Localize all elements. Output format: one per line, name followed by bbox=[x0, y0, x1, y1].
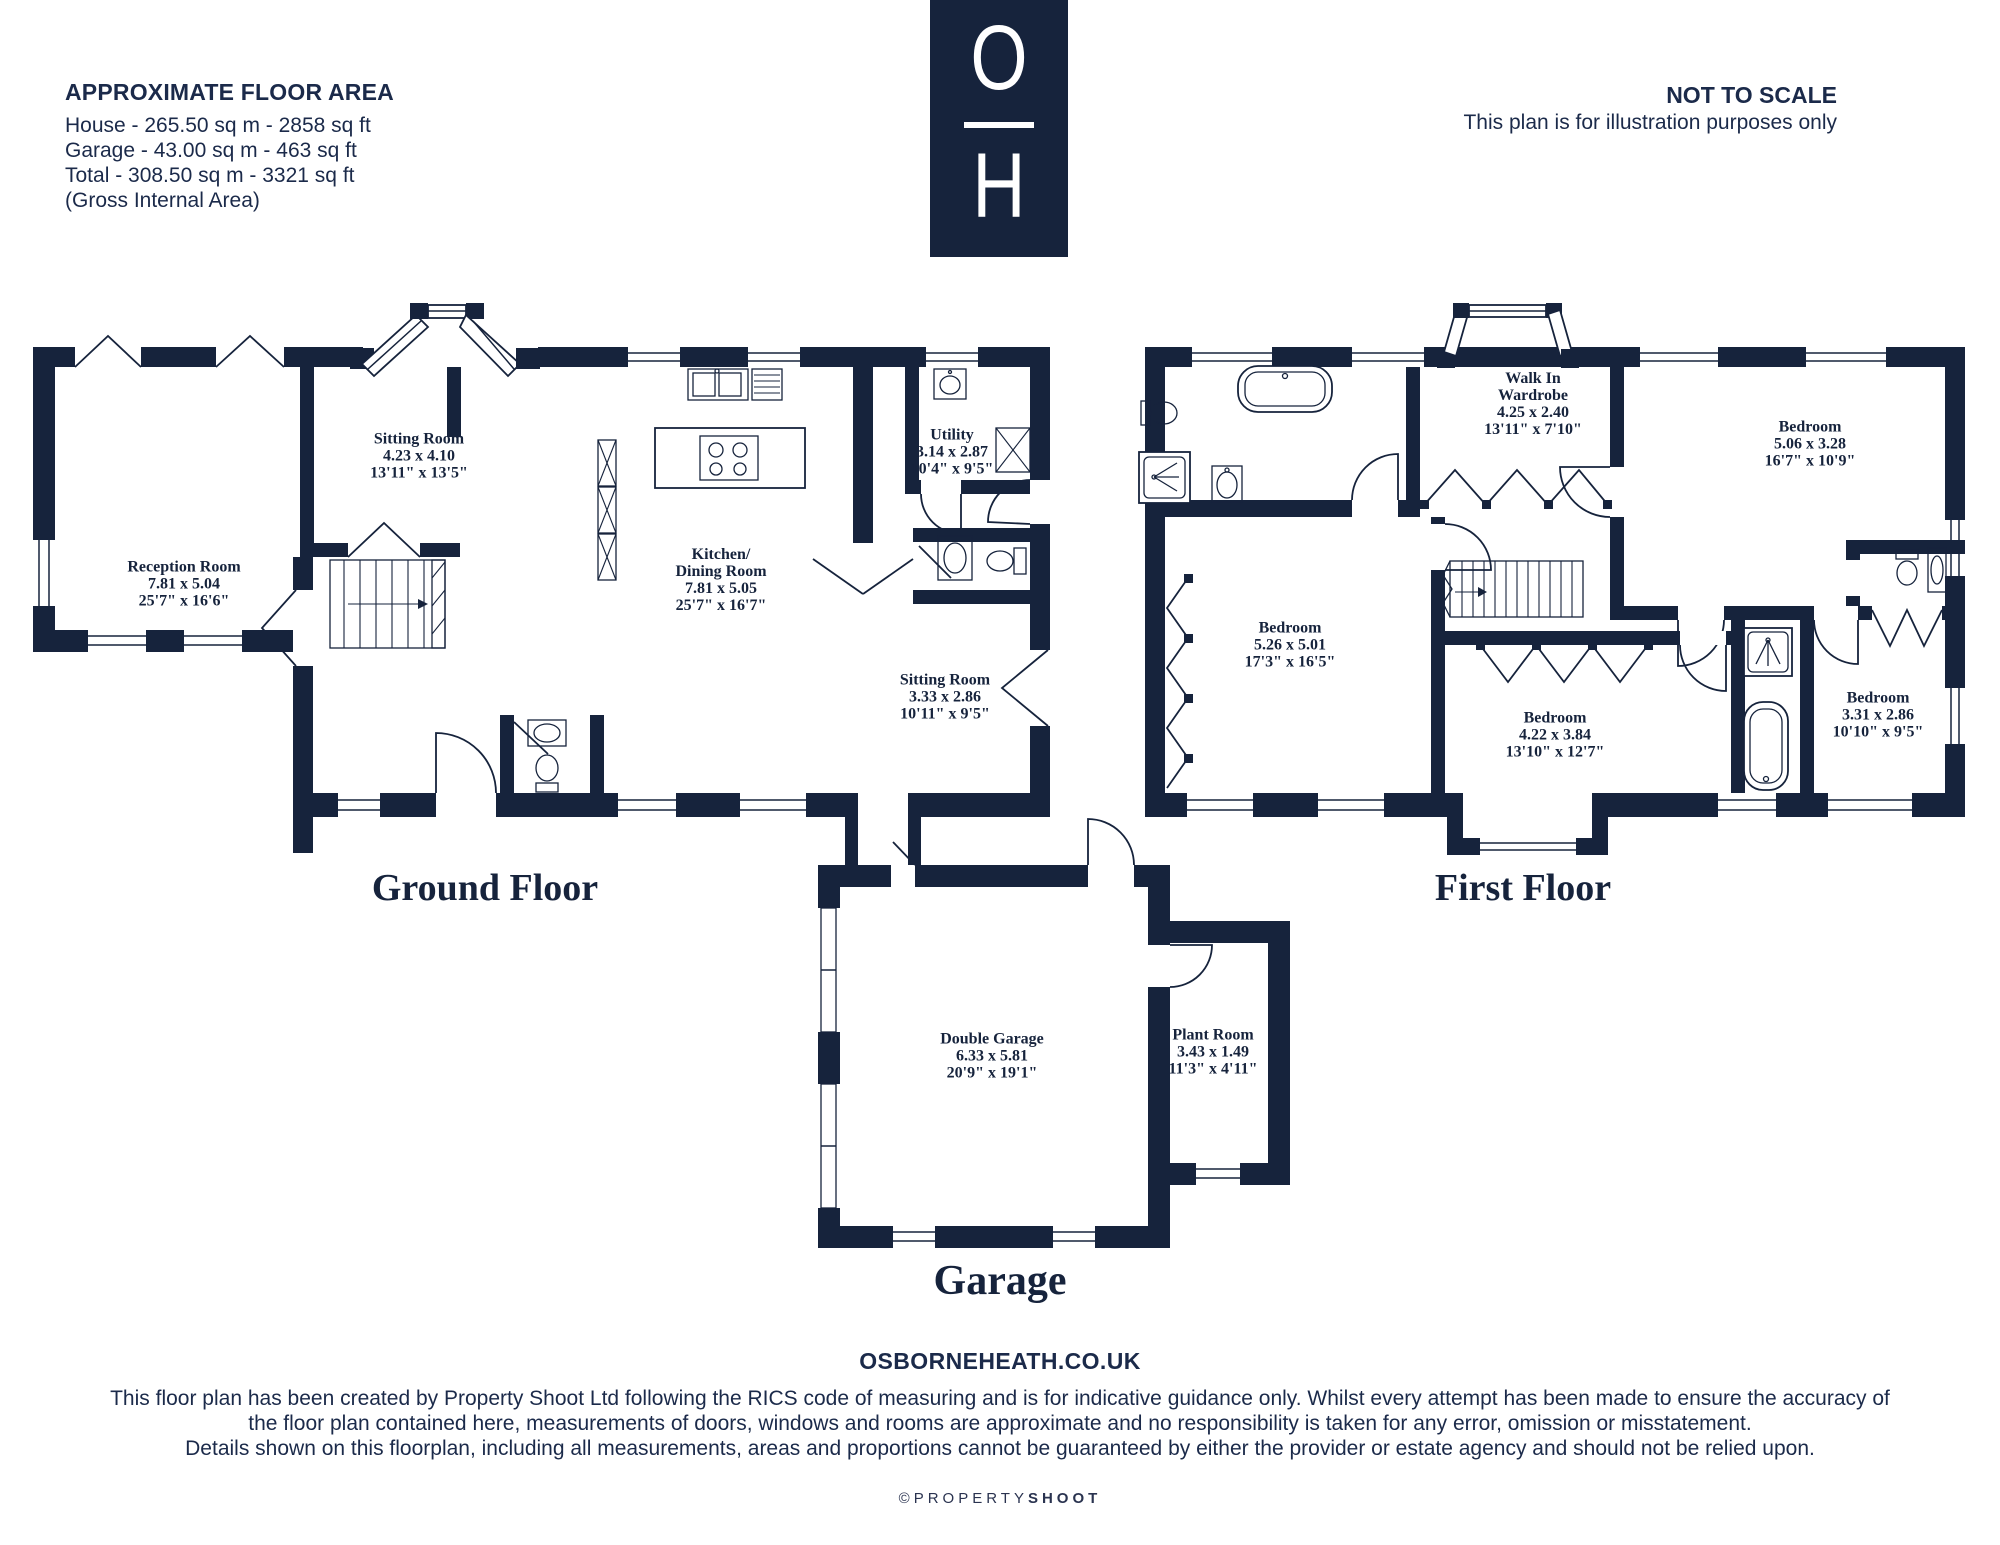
scale-note: NOT TO SCALE This plan is for illustrati… bbox=[1463, 82, 1837, 135]
logo-divider bbox=[964, 122, 1034, 128]
floor-area-garage: Garage - 43.00 sq m - 463 sq ft bbox=[65, 138, 394, 163]
website-url: OSBORNEHEATH.CO.UK bbox=[0, 1348, 2000, 1375]
first-floor-title: First Floor bbox=[1435, 866, 1611, 910]
kitchen-sink bbox=[688, 369, 782, 400]
tall-units bbox=[598, 440, 616, 580]
room-label-bedroom-1: Bedroom 5.06 x 3.28 16'7" x 10'9" bbox=[1765, 419, 1856, 470]
staircase-ground bbox=[330, 560, 445, 648]
room-label-sitting-room-2: Sitting Room 3.33 x 2.86 10'11" x 9'5" bbox=[900, 672, 990, 723]
credit-suffix: SHOOT bbox=[1028, 1490, 1101, 1507]
disclaimer-line-3: Details shown on this floorplan, includi… bbox=[0, 1436, 2000, 1461]
scale-note-subtitle: This plan is for illustration purposes o… bbox=[1463, 111, 1837, 135]
room-label-sitting-room: Sitting Room 4.23 x 4.10 13'11" x 13'5" bbox=[370, 431, 468, 482]
room-label-bedroom-2: Bedroom 5.26 x 5.01 17'3" x 16'5" bbox=[1245, 620, 1336, 671]
floor-area-house: House - 265.50 sq m - 2858 sq ft bbox=[65, 113, 394, 138]
disclaimer-text: This floor plan has been created by Prop… bbox=[0, 1386, 2000, 1461]
bedroom-zigzag bbox=[1476, 641, 1653, 682]
room-label-plant-room: Plant Room 3.43 x 1.49 11'3" x 4'11" bbox=[1169, 1027, 1258, 1078]
disclaimer-line-1: This floor plan has been created by Prop… bbox=[0, 1386, 2000, 1411]
left-zigzag bbox=[1167, 574, 1193, 788]
room-label-bedroom-3: Bedroom 4.22 x 3.84 13'10" x 12'7" bbox=[1506, 710, 1605, 761]
scale-note-title: NOT TO SCALE bbox=[1463, 82, 1837, 108]
wc-fixtures bbox=[938, 536, 1026, 580]
room-label-double-garage: Double Garage 6.33 x 5.81 20'9" x 19'1" bbox=[940, 1031, 1044, 1082]
wardrobe-zigzag bbox=[1420, 470, 1612, 509]
credit-line: ©PROPERTYSHOOT bbox=[0, 1490, 2000, 1507]
floorplan-page: { "colors": {"navy": "#16233c", "backgro… bbox=[0, 0, 2000, 1545]
floor-area-title: APPROXIMATE FLOOR AREA bbox=[65, 80, 394, 105]
bathroom2-fixtures bbox=[1744, 628, 1792, 790]
agency-logo: O H bbox=[930, 0, 1068, 257]
cloakroom-fixtures bbox=[528, 720, 566, 792]
floor-area-total: Total - 308.50 sq m - 3321 sq ft bbox=[65, 163, 394, 188]
ground-floor-title: Ground Floor bbox=[372, 866, 598, 910]
room-label-walk-in-wardrobe: Walk In Wardrobe 4.25 x 2.40 13'11" x 7'… bbox=[1484, 370, 1582, 438]
bottom-bay bbox=[1447, 793, 1608, 855]
ensuite-fixtures bbox=[1896, 548, 1946, 592]
bathroom-fixtures bbox=[1139, 366, 1332, 503]
room-label-kitchen-dining: Kitchen/ Dining Room 7.81 x 5.05 25'7" x… bbox=[675, 546, 766, 614]
room-label-bedroom-4: Bedroom 3.31 x 2.86 10'10" x 9'5" bbox=[1833, 690, 1924, 741]
kitchen-island bbox=[655, 428, 805, 488]
floor-area-summary: APPROXIMATE FLOOR AREA House - 265.50 sq… bbox=[65, 80, 394, 213]
credit-prefix: ©PROPERTY bbox=[899, 1490, 1028, 1507]
logo-letter-h: H bbox=[944, 140, 1054, 232]
room-label-reception: Reception Room 7.81 x 5.04 25'7" x 16'6" bbox=[127, 559, 240, 610]
room-label-utility: Utility 3.14 x 2.87 10'4" x 9'5" bbox=[911, 427, 994, 478]
disclaimer-line-2: the floor plan contained here, measureme… bbox=[0, 1411, 2000, 1436]
garage-title: Garage bbox=[934, 1257, 1067, 1305]
floor-area-note: (Gross Internal Area) bbox=[65, 188, 394, 213]
logo-letter-o: O bbox=[944, 12, 1054, 104]
bay-window-ground bbox=[350, 303, 540, 376]
